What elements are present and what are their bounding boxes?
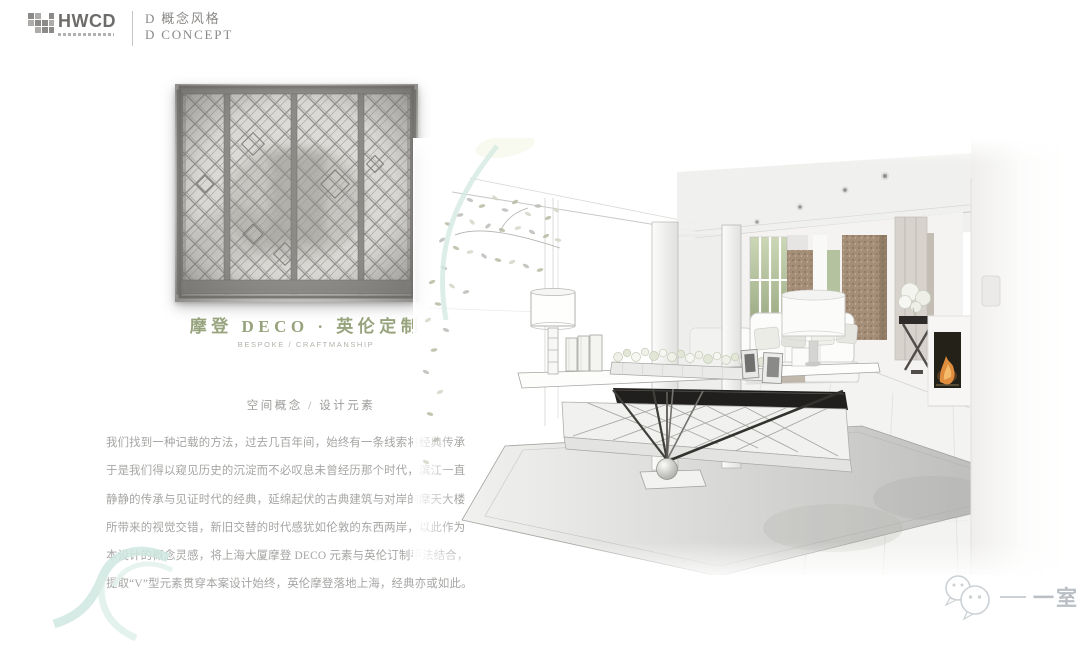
wall-sconce xyxy=(982,276,1000,306)
watermark-label: 一室 xyxy=(1033,582,1079,612)
window-greenery xyxy=(750,237,787,323)
logo-tagline-bar xyxy=(58,33,114,36)
hwcd-logo-grid-icon xyxy=(28,11,54,37)
watermark-dash xyxy=(1000,596,1026,598)
section-title-cn: D 概念风格 xyxy=(145,11,233,27)
logo-text: HWCD xyxy=(58,11,116,31)
green-pane xyxy=(827,250,840,293)
header-divider xyxy=(132,11,133,46)
fireplace xyxy=(928,316,973,406)
presentation-slide: HWCD D 概念风格 D CONCEPT xyxy=(0,0,1080,641)
interior-rendering xyxy=(413,138,1080,575)
section-title-en: D CONCEPT xyxy=(145,27,233,43)
branch-sketch xyxy=(455,208,560,248)
hwcd-logo: HWCD xyxy=(28,11,116,37)
page-header: HWCD D 概念风格 D CONCEPT xyxy=(28,11,233,46)
books xyxy=(566,335,602,371)
chat-bubbles-icon xyxy=(933,572,993,622)
watermark: 一室 xyxy=(933,572,1079,622)
lattice-screen-photo xyxy=(175,84,418,302)
watercolor-ribbon xyxy=(442,138,536,320)
watercolor-ribbon-bottom xyxy=(40,540,190,641)
